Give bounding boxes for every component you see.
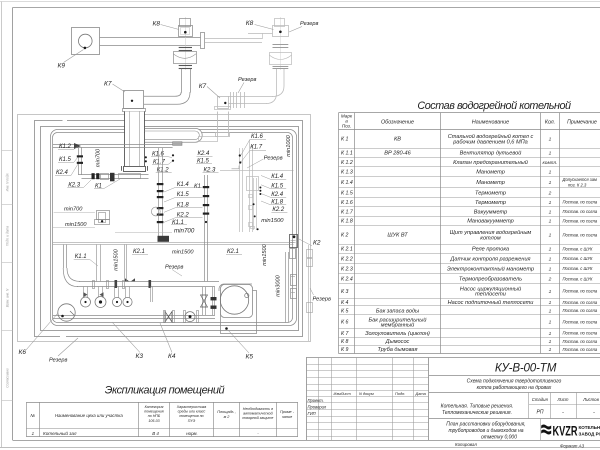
svg-text:ГИП: ГИП xyxy=(308,411,316,416)
svg-text:min700: min700 xyxy=(96,148,102,167)
svg-text:теплосети: теплосети xyxy=(475,292,506,298)
svg-text:ПУЭ: ПУЭ xyxy=(188,419,196,423)
svg-text:Листов: Листов xyxy=(582,397,599,402)
svg-text:2: 2 xyxy=(548,190,552,196)
svg-text:К1.4: К1.4 xyxy=(271,174,284,180)
svg-text:1: 1 xyxy=(549,331,552,337)
svg-text:Электроконтактный манометр: Электроконтактный манометр xyxy=(447,265,534,272)
svg-text:КОТЕЛЬНЫЙ: КОТЕЛЬНЫЙ xyxy=(579,423,600,430)
svg-text:Бак запаса воды: Бак запаса воды xyxy=(376,308,419,314)
svg-text:К1.5: К1.5 xyxy=(59,157,72,163)
svg-text:Резерв: Резерв xyxy=(300,21,318,27)
svg-text:К 9: К 9 xyxy=(341,347,348,353)
svg-text:поз. К 2.3: поз. К 2.3 xyxy=(568,182,587,187)
svg-text:К1.1: К1.1 xyxy=(172,220,184,226)
svg-text:1: 1 xyxy=(549,170,552,176)
svg-text:Согласовано: Согласовано xyxy=(6,368,10,388)
svg-text:ЗАВОД РОСС: ЗАВОД РОСС xyxy=(579,432,600,437)
svg-text:К 2.3: К 2.3 xyxy=(341,266,353,272)
svg-text:105-03: 105-03 xyxy=(148,419,159,423)
svg-text:К1: К1 xyxy=(194,184,201,190)
svg-text:Вентилятор дутьевой: Вентилятор дутьевой xyxy=(460,150,522,157)
svg-text:Постав. по согла: Постав. по согла xyxy=(563,331,598,336)
svg-text:Датчик контроля разрежения: Датчик контроля разрежения xyxy=(449,256,530,262)
svg-text:Постав. по согла: Постав. по согла xyxy=(563,300,598,305)
svg-text:К 1.3: К 1.3 xyxy=(341,170,353,176)
svg-text:min1500: min1500 xyxy=(261,218,284,224)
svg-text:Реле протока: Реле протока xyxy=(472,247,509,253)
svg-text:1: 1 xyxy=(549,209,552,215)
svg-text:котла работающего на дровах: котла работающего на дровах xyxy=(477,385,552,391)
svg-text:К 2: К 2 xyxy=(341,233,348,239)
svg-text:норм.: норм. xyxy=(186,431,197,436)
svg-text:Клапан предохранительный: Клапан предохранительный xyxy=(453,159,528,166)
svg-text:Термометр: Термометр xyxy=(475,190,506,196)
svg-text:N докум: N докум xyxy=(359,391,374,396)
svg-text:Термопреобразователь: Термопреобразователь xyxy=(459,277,522,283)
svg-text:1: 1 xyxy=(549,247,552,253)
svg-text:К 1.4: К 1.4 xyxy=(341,180,353,186)
svg-text:ШУК ВТ: ШУК ВТ xyxy=(387,233,408,239)
svg-text:1: 1 xyxy=(549,308,552,314)
svg-text:Постав. по согла: Постав. по согла xyxy=(563,218,598,223)
svg-text:К2.2: К2.2 xyxy=(272,207,285,213)
svg-text:Манометр: Манометр xyxy=(476,180,505,186)
svg-text:помещения по: помещения по xyxy=(179,414,203,418)
svg-text:min700: min700 xyxy=(64,206,83,212)
svg-text:Характеристика: Характеристика xyxy=(176,405,207,409)
svg-text:помещения: помещения xyxy=(144,410,163,414)
svg-text:Подп. и дата: Подп. и дата xyxy=(6,226,10,246)
svg-text:1: 1 xyxy=(549,300,552,306)
svg-text:К2.1: К2.1 xyxy=(227,249,239,255)
svg-text:Резерв: Резерв xyxy=(264,156,283,162)
svg-text:min3000: min3000 xyxy=(276,274,282,296)
svg-text:Копировал: Копировал xyxy=(455,442,477,447)
svg-text:Котельная. Типовые решения.: Котельная. Типовые решения. xyxy=(441,403,514,409)
svg-text:К 1.5: К 1.5 xyxy=(341,190,353,196)
svg-text:Резерв: Резерв xyxy=(238,77,256,83)
svg-text:К5: К5 xyxy=(246,354,254,361)
svg-text:Наименование цеха или участка: Наименование цеха или участка xyxy=(55,413,124,418)
svg-text:min1500: min1500 xyxy=(114,248,120,270)
svg-text:К1.4: К1.4 xyxy=(177,182,190,188)
svg-text:Примечание: Примечание xyxy=(567,120,597,126)
svg-text:Наименование: Наименование xyxy=(472,120,509,126)
svg-text:К1.5: К1.5 xyxy=(177,192,190,198)
svg-text:Золоуловитель (циклон): Золоуловитель (циклон) xyxy=(365,331,430,337)
svg-text:К 5: К 5 xyxy=(341,308,348,314)
svg-text:1: 1 xyxy=(549,347,552,353)
svg-text:К7: К7 xyxy=(104,81,112,88)
svg-text:КВ: КВ xyxy=(394,137,401,143)
svg-text:Категория: Категория xyxy=(145,405,164,409)
svg-text:К 1.6: К 1.6 xyxy=(341,200,353,206)
svg-text:Проверил: Проверил xyxy=(308,404,327,409)
svg-text:Постав. по согла: Постав. по согла xyxy=(563,209,598,214)
svg-text:Дымосос: Дымосос xyxy=(385,339,410,345)
svg-text:Труба дымовая: Труба дымовая xyxy=(378,347,418,353)
svg-text:компл.: компл. xyxy=(543,161,558,166)
svg-text:Постав. с ШУК: Постав. с ШУК xyxy=(563,266,594,271)
svg-text:Постав. с ШУК: Постав. с ШУК xyxy=(563,256,594,261)
svg-text:1: 1 xyxy=(549,233,552,239)
svg-text:К7: К7 xyxy=(199,83,207,90)
svg-text:Формат А3: Формат А3 xyxy=(560,444,585,449)
svg-text:Схема подключения твердотоплив: Схема подключения твердотопливного xyxy=(467,379,562,385)
svg-text:ИзмЛист: ИзмЛист xyxy=(334,391,352,396)
svg-text:Постав. по согла: Постав. по согла xyxy=(563,339,598,344)
svg-text:1: 1 xyxy=(549,180,552,186)
svg-text:Проект.: Проект. xyxy=(308,398,324,403)
svg-text:В 4: В 4 xyxy=(152,431,159,436)
svg-text:Постав. по согла: Постав. по согла xyxy=(563,289,598,294)
svg-text:К 1.7: К 1.7 xyxy=(341,209,354,215)
svg-text:Обозначение: Обозначение xyxy=(381,120,414,126)
svg-text:1: 1 xyxy=(549,256,552,262)
svg-text:котлом: котлом xyxy=(480,235,501,241)
svg-text:К1.7: К1.7 xyxy=(250,144,263,150)
svg-text:KVZR: KVZR xyxy=(553,424,578,439)
svg-text:№: № xyxy=(30,413,35,418)
svg-text:рабочим давлением 0,6 МПа: рабочим давлением 0,6 МПа xyxy=(452,139,528,145)
svg-text:К2.4: К2.4 xyxy=(198,151,211,157)
svg-text:1: 1 xyxy=(549,151,552,157)
svg-text:РП: РП xyxy=(537,410,544,416)
svg-text:К2.1: К2.1 xyxy=(133,249,145,255)
svg-text:К 8: К 8 xyxy=(341,339,348,345)
svg-text:К 7: К 7 xyxy=(341,331,349,337)
svg-text:Площадь ,: Площадь , xyxy=(217,410,236,414)
svg-text:К2: К2 xyxy=(313,240,321,247)
svg-text:Приме -: Приме - xyxy=(280,410,295,414)
svg-text:Стадия: Стадия xyxy=(532,397,549,402)
svg-text:Тепломеханические решения.: Тепломеханические решения. xyxy=(442,410,512,416)
svg-text:1: 1 xyxy=(549,289,552,295)
svg-text:К 6: К 6 xyxy=(341,320,348,326)
svg-text:отметку 0,000: отметку 0,000 xyxy=(481,435,517,441)
svg-text:К 4: К 4 xyxy=(341,300,348,306)
svg-text:мембранный: мембранный xyxy=(381,322,414,329)
svg-text:среды или класс: среды или класс xyxy=(178,410,206,414)
svg-text:Резерв: Резерв xyxy=(313,296,331,302)
svg-text:Постав. по согла: Постав. по согла xyxy=(563,347,598,352)
svg-text:трубопроводов и дымоходов на: трубопроводов и дымоходов на xyxy=(448,428,523,434)
svg-text:Резерв: Резерв xyxy=(49,358,67,364)
svg-text:КУ-В-00-ТМ: КУ-В-00-ТМ xyxy=(495,361,557,374)
svg-text:К 2.4: К 2.4 xyxy=(341,277,353,283)
svg-text:1: 1 xyxy=(549,137,552,143)
svg-text:К8: К8 xyxy=(153,21,161,28)
svg-text:К9: К9 xyxy=(58,63,66,70)
svg-text:min1500: min1500 xyxy=(262,243,268,265)
svg-text:К1.2: К1.2 xyxy=(59,144,72,150)
svg-text:К 1.1: К 1.1 xyxy=(341,151,353,157)
svg-text:пожарной защите: пожарной защите xyxy=(242,416,273,420)
svg-text:Поз.: Поз. xyxy=(342,124,351,129)
svg-text:1: 1 xyxy=(549,320,552,326)
svg-text:Постав. по согла: Постав. по согла xyxy=(563,308,598,313)
svg-text:К 1.2: К 1.2 xyxy=(341,160,353,166)
svg-text:К 2.1: К 2.1 xyxy=(341,247,353,253)
svg-text:Постав. с ШУК: Постав. с ШУК xyxy=(563,246,594,251)
svg-text:м 2: м 2 xyxy=(224,415,231,419)
svg-text:min1500: min1500 xyxy=(65,222,87,228)
svg-text:1: 1 xyxy=(549,219,552,225)
svg-text:Насос подпиточный теплосети: Насос подпиточный теплосети xyxy=(448,299,534,306)
svg-text:Постав. по согла: Постав. по согла xyxy=(563,319,598,324)
svg-text:Постав. по согла: Постав. по согла xyxy=(563,232,598,237)
svg-text:Инв. N подл.: Инв. N подл. xyxy=(6,173,10,192)
svg-text:1: 1 xyxy=(549,200,552,206)
svg-text:Котельный зал: Котельный зал xyxy=(43,430,77,436)
svg-text:Постав. по согла: Постав. по согла xyxy=(563,200,598,205)
svg-text:1: 1 xyxy=(549,339,552,345)
svg-text:ВР 280-46: ВР 280-46 xyxy=(384,151,411,157)
svg-text:Необходимость в: Необходимость в xyxy=(243,407,273,411)
svg-text:min1000: min1000 xyxy=(286,134,292,156)
svg-text:К 1.8: К 1.8 xyxy=(341,219,353,225)
svg-text:К8: К8 xyxy=(246,20,254,27)
svg-text:План расстановки оборудования,: План расстановки оборудования, xyxy=(446,421,525,427)
svg-text:К 2.2: К 2.2 xyxy=(341,256,353,262)
svg-text:Постав. с ШУК: Постав. с ШУК xyxy=(563,276,594,281)
svg-text:min700: min700 xyxy=(174,227,195,234)
svg-text:Термометр: Термометр xyxy=(475,200,506,206)
svg-text:Мановакуумметр: Мановакуумметр xyxy=(467,219,514,225)
svg-text:Экспликация помещений: Экспликация помещений xyxy=(105,385,225,397)
svg-text:К3: К3 xyxy=(136,353,144,360)
svg-text:2: 2 xyxy=(548,277,552,283)
svg-text:1: 1 xyxy=(549,266,552,272)
svg-text:К 1: К 1 xyxy=(341,137,348,143)
svg-text:Подп.: Подп. xyxy=(395,391,405,396)
svg-text:min1500: min1500 xyxy=(172,249,194,255)
svg-text:Дата: Дата xyxy=(415,391,427,396)
svg-text:К6: К6 xyxy=(19,349,27,356)
svg-text:К2.4: К2.4 xyxy=(271,192,284,198)
svg-text:автоматической: автоматической xyxy=(243,412,273,416)
svg-text:Вакуумметр: Вакуумметр xyxy=(474,209,508,215)
svg-text:Манометр: Манометр xyxy=(476,170,505,176)
svg-text:чание: чание xyxy=(282,415,292,419)
svg-text:Взам. инв. N: Взам. инв. N xyxy=(6,288,10,307)
svg-text:Лист: Лист xyxy=(556,397,568,402)
svg-text:Кол.: Кол. xyxy=(545,120,555,126)
svg-text:Резерв: Резерв xyxy=(165,264,183,270)
svg-text:К 3: К 3 xyxy=(341,289,348,295)
svg-text:К1.6: К1.6 xyxy=(251,134,264,140)
svg-text:по НПБ: по НПБ xyxy=(148,414,161,418)
svg-text:Состав водогрейной котельной: Состав водогрейной котельной xyxy=(417,100,571,112)
svg-text:К4: К4 xyxy=(168,353,176,360)
